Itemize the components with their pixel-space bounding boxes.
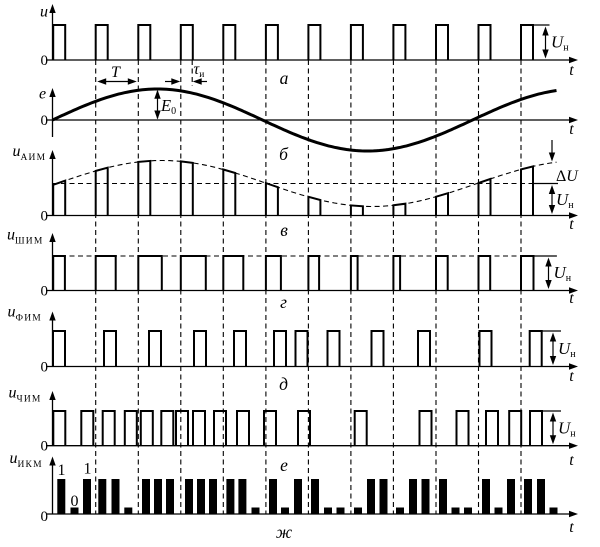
svg-text:0: 0 (41, 113, 49, 129)
svg-text:ΔU: ΔU (556, 168, 579, 185)
svg-text:в: в (280, 220, 288, 240)
svg-text:ж: ж (276, 522, 293, 542)
svg-text:б: б (279, 144, 289, 164)
svg-text:0: 0 (41, 53, 49, 69)
svg-text:а: а (280, 68, 289, 88)
svg-text:t: t (569, 519, 574, 536)
svg-text:0: 0 (41, 209, 49, 225)
svg-text:1: 1 (58, 462, 66, 479)
svg-text:1: 1 (84, 461, 92, 478)
svg-text:д: д (279, 374, 288, 394)
svg-text:0: 0 (41, 360, 49, 376)
svg-text:0: 0 (41, 509, 49, 525)
svg-text:е: е (280, 455, 288, 475)
svg-text:u: u (40, 4, 48, 21)
svg-text:t: t (569, 290, 574, 307)
svg-text:t: t (569, 368, 574, 385)
svg-text:0: 0 (71, 493, 79, 510)
svg-text:T: T (111, 64, 121, 81)
svg-text:e: e (39, 86, 46, 103)
svg-text:г: г (280, 292, 287, 312)
svg-text:t: t (569, 216, 574, 233)
svg-text:t: t (569, 452, 574, 469)
svg-text:t: t (569, 121, 574, 138)
svg-text:0: 0 (41, 284, 49, 300)
svg-text:t: t (569, 62, 574, 79)
svg-text:0: 0 (41, 439, 49, 455)
